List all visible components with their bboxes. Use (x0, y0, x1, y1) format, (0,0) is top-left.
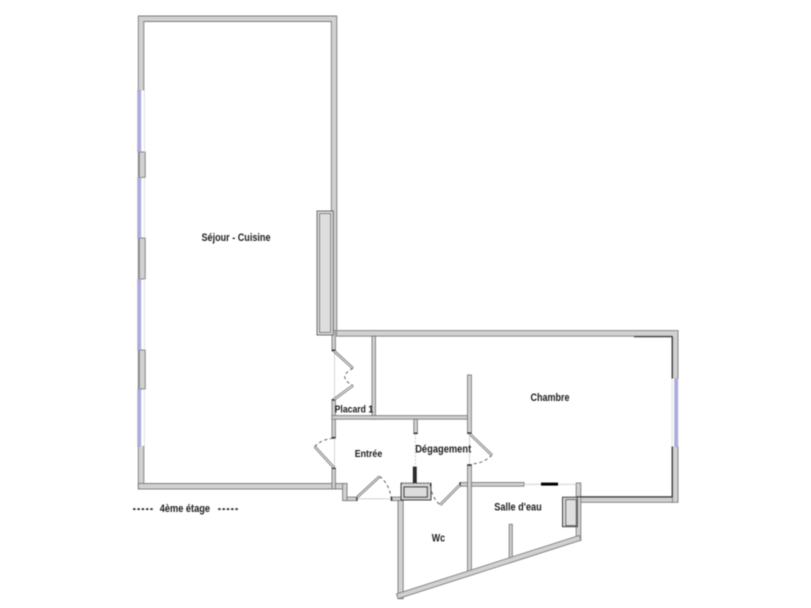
svg-text:Dégagement: Dégagement (415, 444, 471, 456)
svg-text:Placard 1: Placard 1 (335, 403, 374, 415)
svg-text:Salle d'eau: Salle d'eau (494, 502, 542, 514)
svg-text:Séjour - Cuisine: Séjour - Cuisine (202, 232, 271, 244)
svg-text:Wc: Wc (432, 532, 445, 544)
svg-text:Entrée: Entrée (355, 448, 383, 460)
svg-text:4ème étage: 4ème étage (160, 503, 210, 515)
svg-text:Chambre: Chambre (531, 392, 570, 404)
